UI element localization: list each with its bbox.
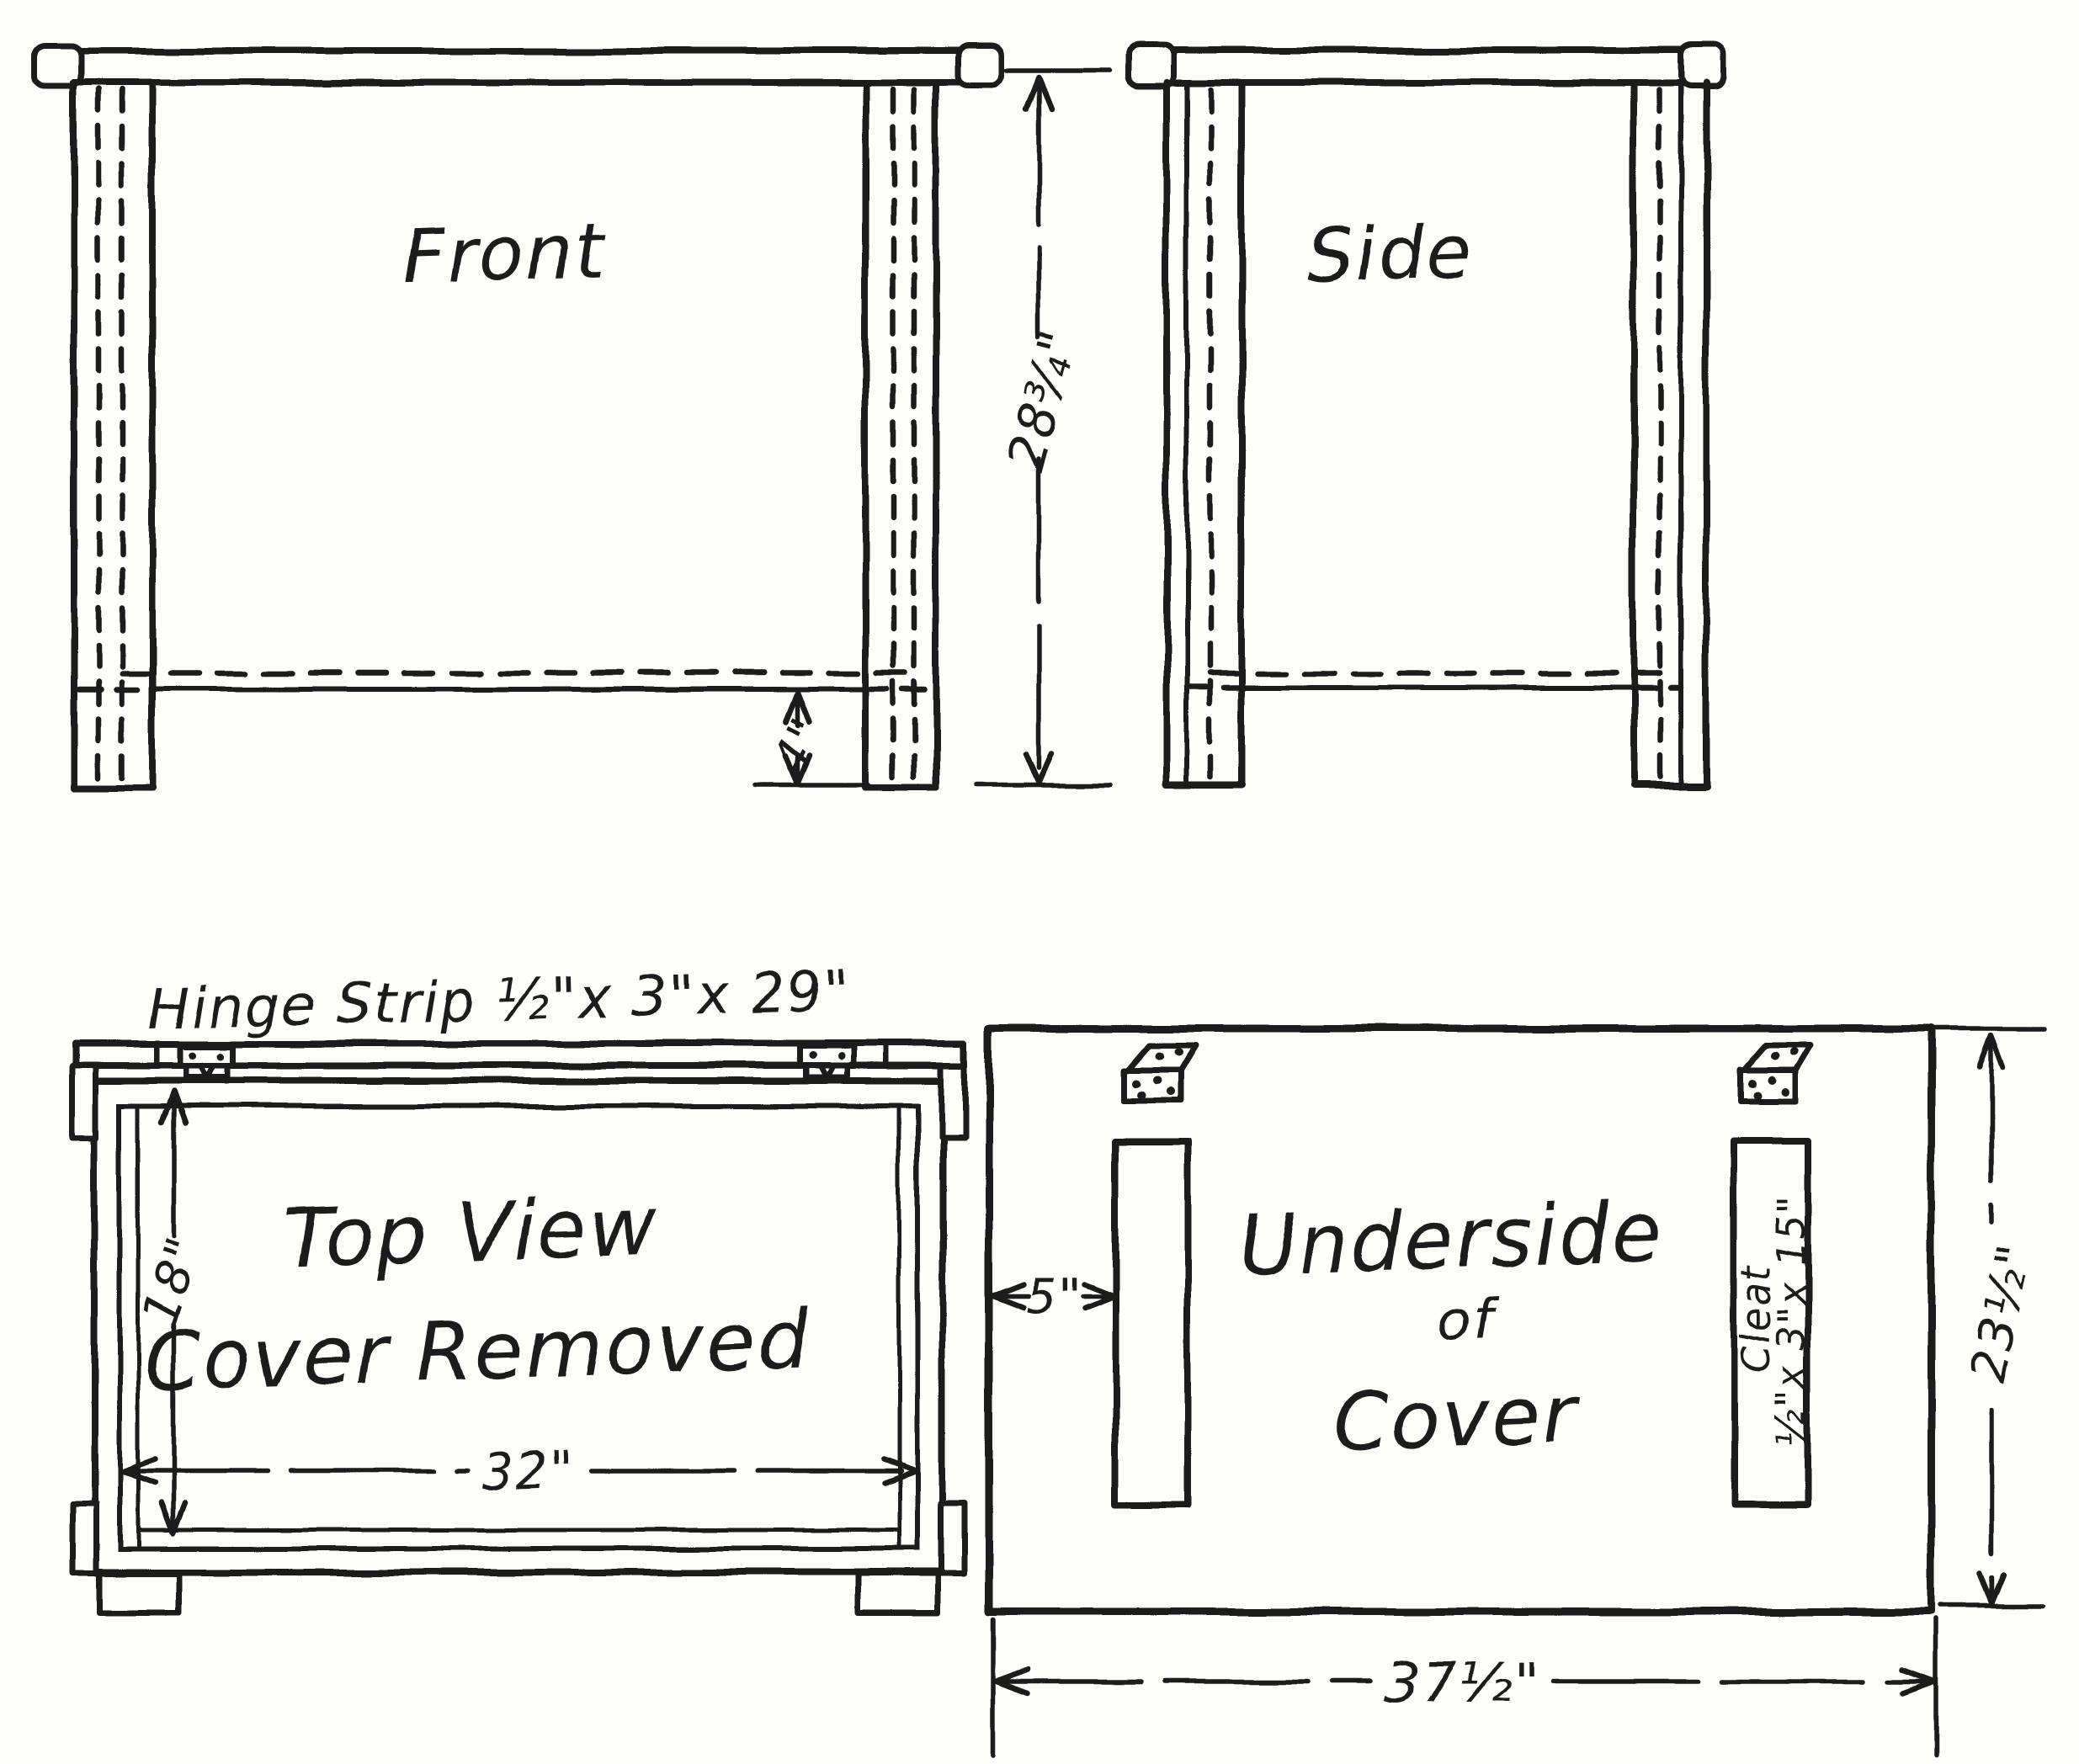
underside-title-line1: Underside	[1236, 1184, 1664, 1294]
screw-dot	[1137, 1092, 1146, 1100]
screw-dot	[189, 1052, 196, 1060]
top-view: Hinge Strip ½"x 3"x 29"	[72, 959, 965, 1613]
side-tabletop	[1135, 50, 1707, 82]
width-dimension-label: 32"	[481, 1440, 575, 1502]
front-right-leg	[865, 82, 936, 788]
screw-dot	[1132, 1080, 1141, 1088]
front-view: Front 4"	[35, 45, 1002, 788]
inset-dimension-label: 5"	[1026, 1267, 1083, 1325]
corner-post	[72, 1503, 96, 1574]
corner-post-foot	[99, 1574, 178, 1613]
underside-title-line2: of	[1436, 1288, 1501, 1355]
screw-dot	[1156, 1052, 1164, 1060]
cover-depth-dimension: 23½"	[1934, 1028, 2044, 1606]
front-tabletop-right-cap	[958, 45, 1002, 86]
foot-dimension: 4"	[754, 693, 869, 785]
inset-dimension: 5"	[993, 1267, 1114, 1325]
screw-dot	[1789, 1048, 1798, 1056]
front-tabletop	[40, 50, 970, 82]
screw-dot	[1166, 1088, 1174, 1097]
height-dimension: 28¾"	[976, 71, 1111, 785]
underside-view: Cleat ½"x 3"x 15" 5" 23½"	[989, 1028, 2044, 1756]
top-view-title: Top View	[283, 1179, 659, 1286]
depth-dimension: 18"	[130, 1091, 213, 1533]
corner-post	[72, 1065, 96, 1138]
side-view: Side	[1130, 45, 1724, 786]
foot-dimension-label: 4"	[760, 708, 837, 785]
top-view-subtitle: Cover Removed	[142, 1292, 812, 1410]
screw-dot	[809, 1052, 816, 1060]
front-left-leg	[74, 82, 152, 788]
side-view-label: Side	[1305, 208, 1475, 300]
height-dimension-label: 28¾"	[997, 323, 1091, 476]
screw-dot	[1768, 1076, 1776, 1085]
corner-post	[941, 1065, 965, 1138]
screw-dot	[1781, 1088, 1789, 1097]
screw-dot	[1174, 1048, 1183, 1056]
front-view-label: Front	[401, 207, 609, 300]
hinge	[179, 1046, 233, 1078]
screw-dot	[1771, 1052, 1779, 1060]
hinge	[800, 1046, 853, 1078]
cleat-left	[1115, 1142, 1188, 1505]
width-dimension: 32"	[123, 1440, 916, 1502]
hinge	[1125, 1045, 1195, 1102]
cover-depth-dimension-label: 23½"	[1959, 1239, 2044, 1386]
screw-dot	[1752, 1092, 1761, 1100]
cleat-note-line2: ½"x 3"x 15"	[1768, 1194, 1814, 1448]
screw-dot	[1747, 1080, 1756, 1088]
underside-title-line3: Cover	[1331, 1367, 1582, 1469]
furniture-plan-drawing: Front 4" 28¾"	[0, 0, 2079, 1764]
corner-post-foot	[859, 1574, 938, 1613]
corner-post	[941, 1503, 965, 1574]
cover-width-dimension-label: 37½"	[1385, 1650, 1541, 1715]
side-tabletop-right-cap	[1682, 45, 1724, 86]
screw-dot	[837, 1053, 845, 1060]
hinge-strip-note: Hinge Strip ½"x 3"x 29"	[146, 959, 852, 1042]
screw-dot	[217, 1053, 225, 1060]
hinge	[1740, 1045, 1810, 1102]
screw-dot	[1152, 1076, 1161, 1085]
cover-width-dimension: 37½"	[993, 1619, 1936, 1756]
